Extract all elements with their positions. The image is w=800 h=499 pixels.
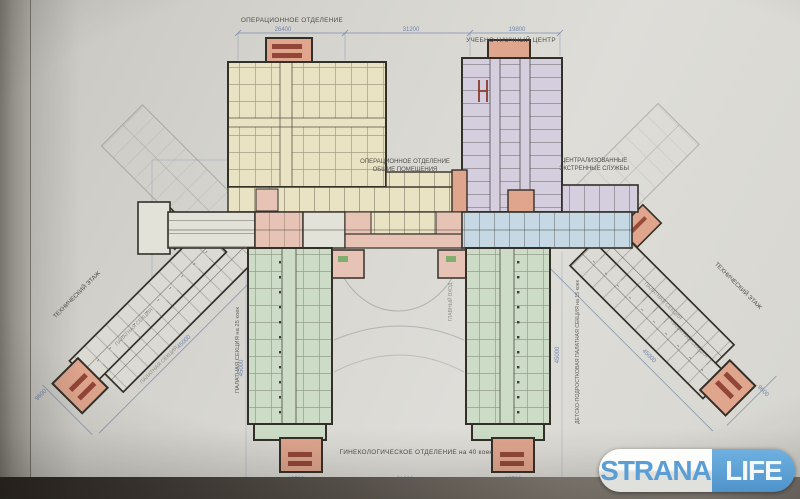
dim-wing-left-end: 9600 xyxy=(34,388,48,402)
dim-top-2: 31200 xyxy=(403,27,420,33)
photographed-floor-plan: ОПЕРАЦИОННОЕ ОТДЕЛЕНИЕ 26400 31200 19800… xyxy=(0,0,800,499)
strana-life-logo: STRANA LIFE xyxy=(599,449,795,492)
label-science-center: УЧЕБНО-НАУЧНЫЙ ЦЕНТР xyxy=(466,35,556,44)
hospital-floor-plan-drawing: ОПЕРАЦИОННОЕ ОТДЕЛЕНИЕ 26400 31200 19800… xyxy=(0,0,800,499)
label-op-common-2: ОБЩИЕ ПОМЕЩЕНИЯ xyxy=(373,167,438,173)
label-emergency-1: ЦЕНТРАЛИЗОВАННЫЕ xyxy=(561,158,627,164)
logo-segment-blue: LIFE xyxy=(712,449,795,492)
dim-side-left: 45000 xyxy=(239,359,245,376)
dim-side-right: 45000 xyxy=(555,346,561,363)
logo-text-life: LIFE xyxy=(725,455,782,487)
ward-wing-right xyxy=(466,248,550,472)
dim-top-3: 19800 xyxy=(509,27,526,33)
label-ward-right: ДЕТСКО-ПОДРОСТКОВАЯ ПАЛАТНАЯ СЕКЦИЯ на 1… xyxy=(575,279,581,424)
ward-wing-left xyxy=(248,248,332,472)
label-operating-dept: ОПЕРАЦИОННОЕ ОТДЕЛЕНИЕ xyxy=(241,17,343,24)
entrance-atrium xyxy=(330,250,466,372)
label-ward-left: ПАЛАТНАЯ СЕКЦИЯ на 25 коек xyxy=(235,306,241,393)
label-gynecology: ГИНЕКОЛОГИЧЕСКОЕ ОТДЕЛЕНИЕ на 40 коек xyxy=(339,449,492,456)
logo-segment-white: STRANA xyxy=(599,449,712,492)
dim-wing-right-end: 9600 xyxy=(756,384,770,398)
block-science-center xyxy=(462,40,638,212)
label-entrance: ГЛАВНЫЙ ВХОД xyxy=(446,282,454,321)
dim-top-1: 26400 xyxy=(275,27,292,33)
label-op-common-1: ОПЕРАЦИОННОЕ ОТДЕЛЕНИЕ xyxy=(360,159,450,165)
label-tech-floor-right: ТЕХНИЧЕСКИЙ ЭТАЖ xyxy=(713,260,764,311)
label-tech-floor-left: ТЕХНИЧЕСКИЙ ЭТАЖ xyxy=(51,269,102,320)
label-emergency-2: ЭКСТРЕННЫЕ СЛУЖБЫ xyxy=(559,166,629,172)
logo-text-strana: STRANA xyxy=(600,455,711,487)
